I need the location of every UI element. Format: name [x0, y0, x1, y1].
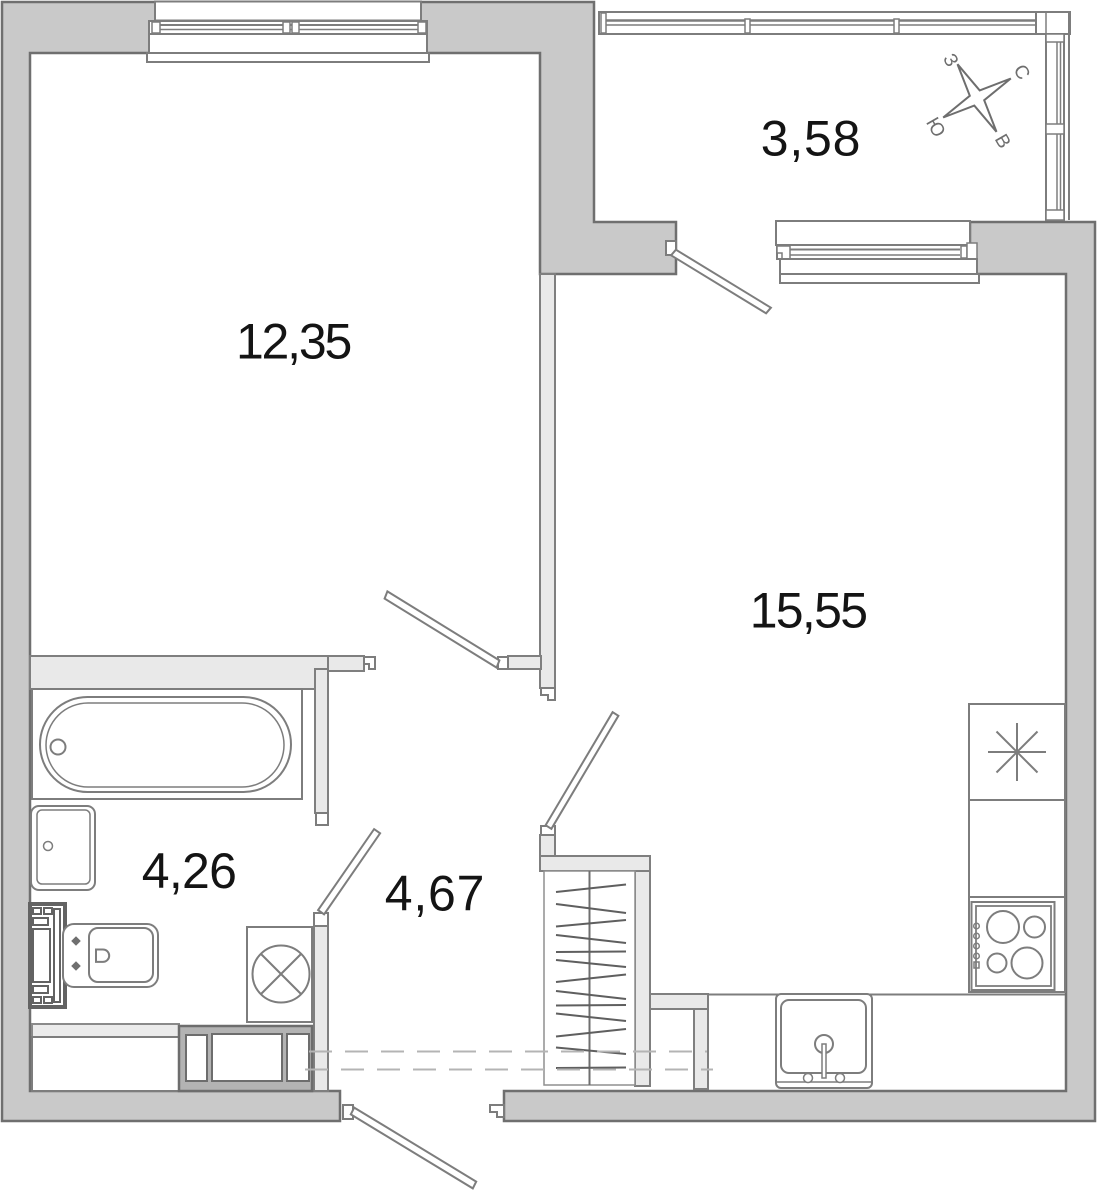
svg-text:4,67: 4,67: [385, 866, 486, 922]
svg-text:15,55: 15,55: [750, 583, 867, 639]
svg-text:12,35: 12,35: [236, 314, 351, 370]
svg-text:3,58: 3,58: [761, 111, 862, 167]
svg-text:4,26: 4,26: [142, 843, 237, 899]
